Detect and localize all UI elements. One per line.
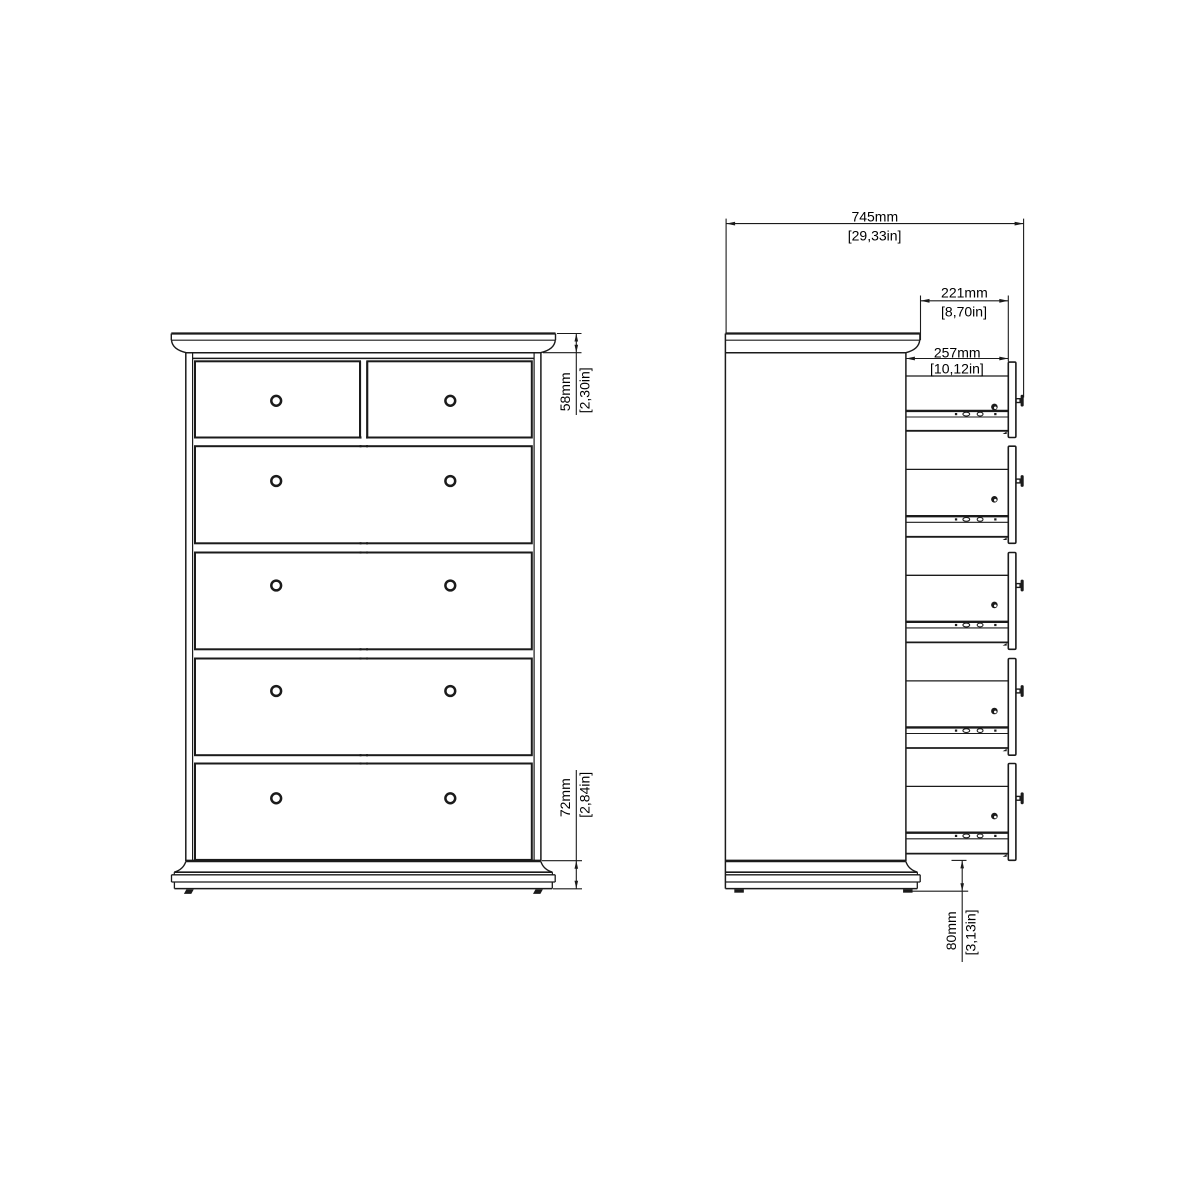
svg-text:[3,13in]: [3,13in]	[962, 909, 978, 955]
svg-text:257mm: 257mm	[934, 344, 981, 360]
svg-text:58mm: 58mm	[557, 372, 573, 411]
svg-text:[2,30in]: [2,30in]	[577, 367, 593, 413]
svg-text:221mm: 221mm	[941, 285, 988, 301]
svg-text:[10,12in]: [10,12in]	[930, 360, 984, 376]
svg-text:72mm: 72mm	[557, 778, 573, 817]
svg-text:745mm: 745mm	[851, 209, 898, 225]
svg-text:[29,33in]: [29,33in]	[848, 228, 902, 244]
svg-text:80mm: 80mm	[943, 911, 959, 950]
svg-text:[2,84in]: [2,84in]	[577, 772, 593, 818]
svg-text:[8,70in]: [8,70in]	[941, 303, 987, 319]
